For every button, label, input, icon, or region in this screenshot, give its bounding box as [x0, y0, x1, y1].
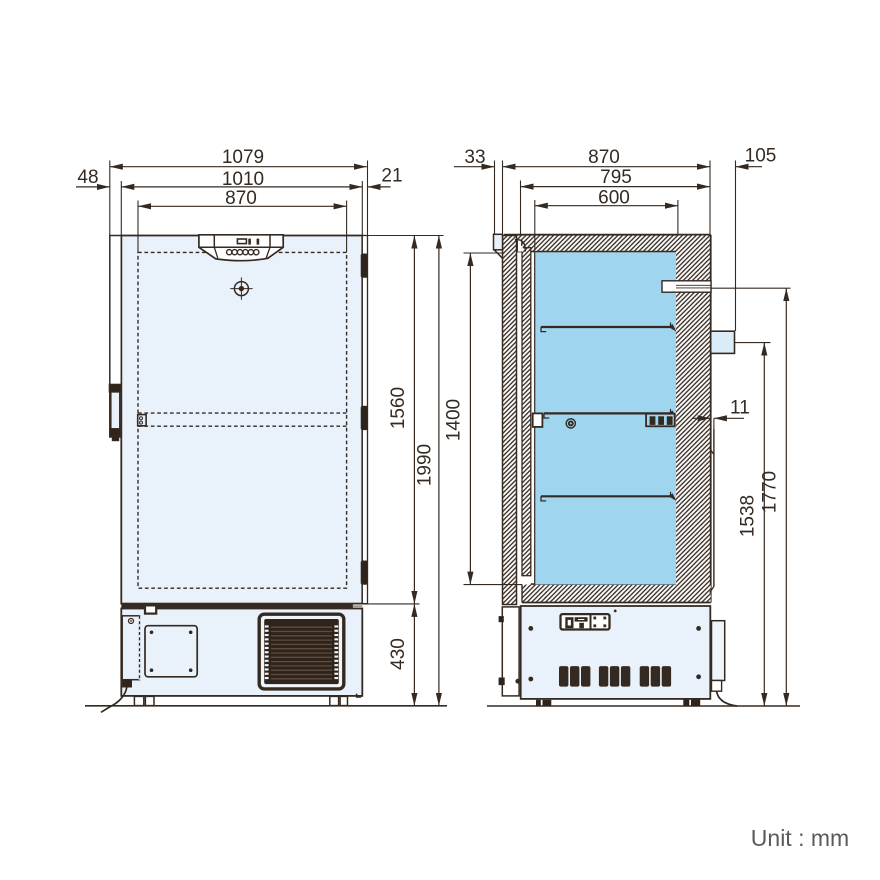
svg-text:1010: 1010	[222, 169, 264, 190]
svg-text:48: 48	[77, 167, 98, 188]
svg-text:105: 105	[745, 146, 777, 167]
svg-text:1770: 1770	[760, 471, 781, 513]
svg-text:795: 795	[600, 167, 632, 188]
svg-text:1079: 1079	[222, 147, 264, 168]
svg-text:11: 11	[730, 398, 750, 419]
svg-text:1990: 1990	[415, 444, 436, 486]
svg-text:21: 21	[381, 166, 402, 187]
svg-text:430: 430	[388, 638, 409, 670]
svg-text:870: 870	[225, 188, 257, 209]
svg-text:870: 870	[588, 147, 620, 168]
svg-text:1538: 1538	[738, 495, 759, 537]
svg-text:1560: 1560	[388, 387, 409, 429]
svg-text:1400: 1400	[444, 399, 465, 441]
svg-text:600: 600	[598, 188, 630, 209]
svg-text:33: 33	[464, 147, 485, 168]
svg-text:Unit : mm: Unit : mm	[751, 825, 849, 851]
